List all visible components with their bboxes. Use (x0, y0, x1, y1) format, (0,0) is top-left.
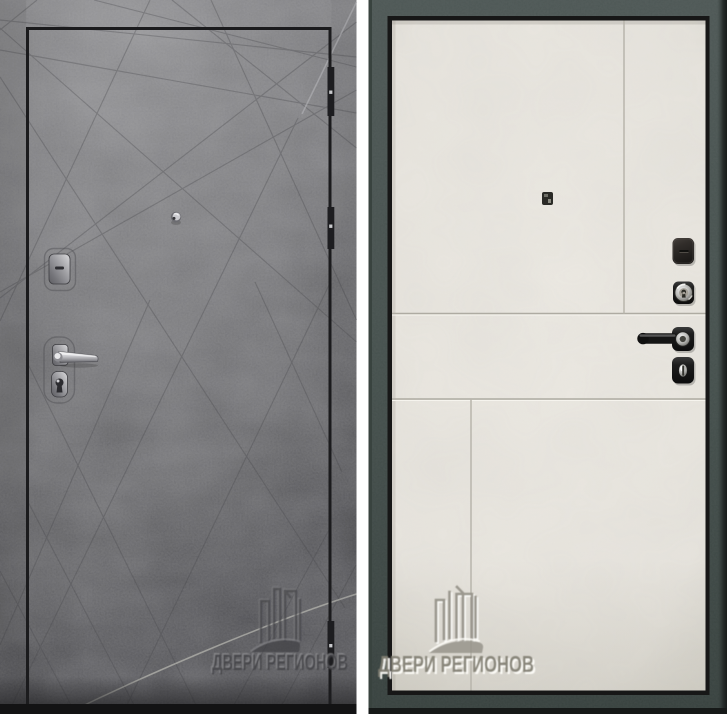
svg-text:ДВЕРИ РЕГИОНОВ: ДВЕРИ РЕГИОНОВ (212, 650, 348, 675)
svg-text:ДВЕРИ РЕГИОНОВ: ДВЕРИ РЕГИОНОВ (378, 651, 534, 677)
